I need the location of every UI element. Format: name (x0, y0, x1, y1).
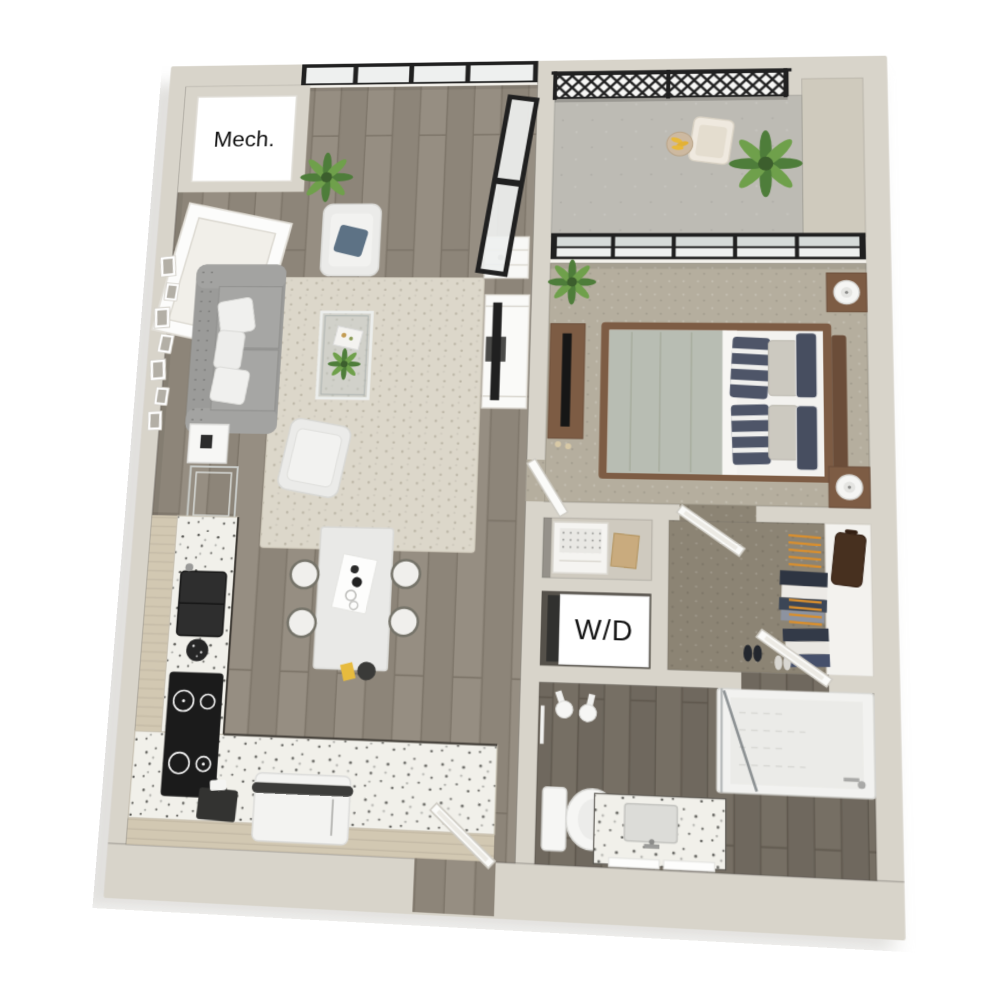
floor-plan-page: Mech. (0, 0, 1000, 1000)
navy-back-pillow (796, 333, 818, 398)
washer-dryer-closet: W/D (540, 591, 652, 669)
cube-side-table (187, 424, 229, 463)
floor-plan-svg: Mech. (92, 54, 917, 953)
floor-plan-scene: Mech. (92, 54, 917, 953)
sofa-pillow (218, 297, 256, 336)
duvet (607, 330, 727, 475)
washer-dryer-label: W/D (574, 613, 633, 647)
suitcase (831, 528, 867, 588)
bed (598, 322, 848, 483)
table-lamp (834, 281, 860, 304)
living-tv-stand (482, 295, 530, 408)
balcony-chair (688, 116, 735, 164)
striped-pillow (731, 404, 771, 465)
navy-back-pillow (796, 406, 818, 471)
armchair-top (320, 204, 382, 276)
storage-box (611, 533, 640, 568)
tub-faucet (844, 778, 860, 783)
sofa-pillow (209, 366, 250, 405)
entry-threshold (412, 858, 495, 916)
mech-closet: Mech. (178, 85, 311, 192)
vanity-drawer (609, 858, 660, 869)
dresser (553, 522, 608, 574)
fridge-top (257, 787, 348, 791)
sofa-lumbar-pillow (213, 330, 246, 370)
vanity-sink (624, 803, 677, 843)
table-lamp (836, 475, 862, 500)
vanity (593, 793, 726, 872)
bedroom-tv-console (548, 324, 586, 450)
cooktop (160, 672, 223, 799)
coffee-table (317, 312, 373, 399)
striped-pillow (729, 336, 770, 399)
balcony-plant (729, 130, 803, 197)
gray-pillow (768, 341, 798, 396)
bedroom (542, 259, 870, 508)
shower-tub (717, 688, 875, 799)
decor-object (200, 435, 213, 449)
gray-pillow (769, 405, 799, 459)
headboard (831, 335, 848, 471)
linen-closet (542, 518, 652, 581)
mech-room-label: Mech. (213, 127, 276, 151)
living-window-wall (301, 61, 538, 88)
walk-in-closet (668, 520, 874, 676)
balcony-railing (555, 72, 788, 98)
balcony-privacy-wall (802, 78, 866, 237)
dresser-pattern-front (559, 528, 601, 553)
toilet-tank (541, 787, 566, 851)
vanity-drawer (664, 860, 715, 871)
balcony (547, 67, 865, 237)
bedroom-window-wall (550, 233, 866, 264)
sofa (185, 265, 287, 434)
balcony-table (667, 132, 693, 156)
fridge (252, 773, 351, 846)
kitchen-island (313, 527, 394, 683)
bathroom (535, 682, 877, 881)
